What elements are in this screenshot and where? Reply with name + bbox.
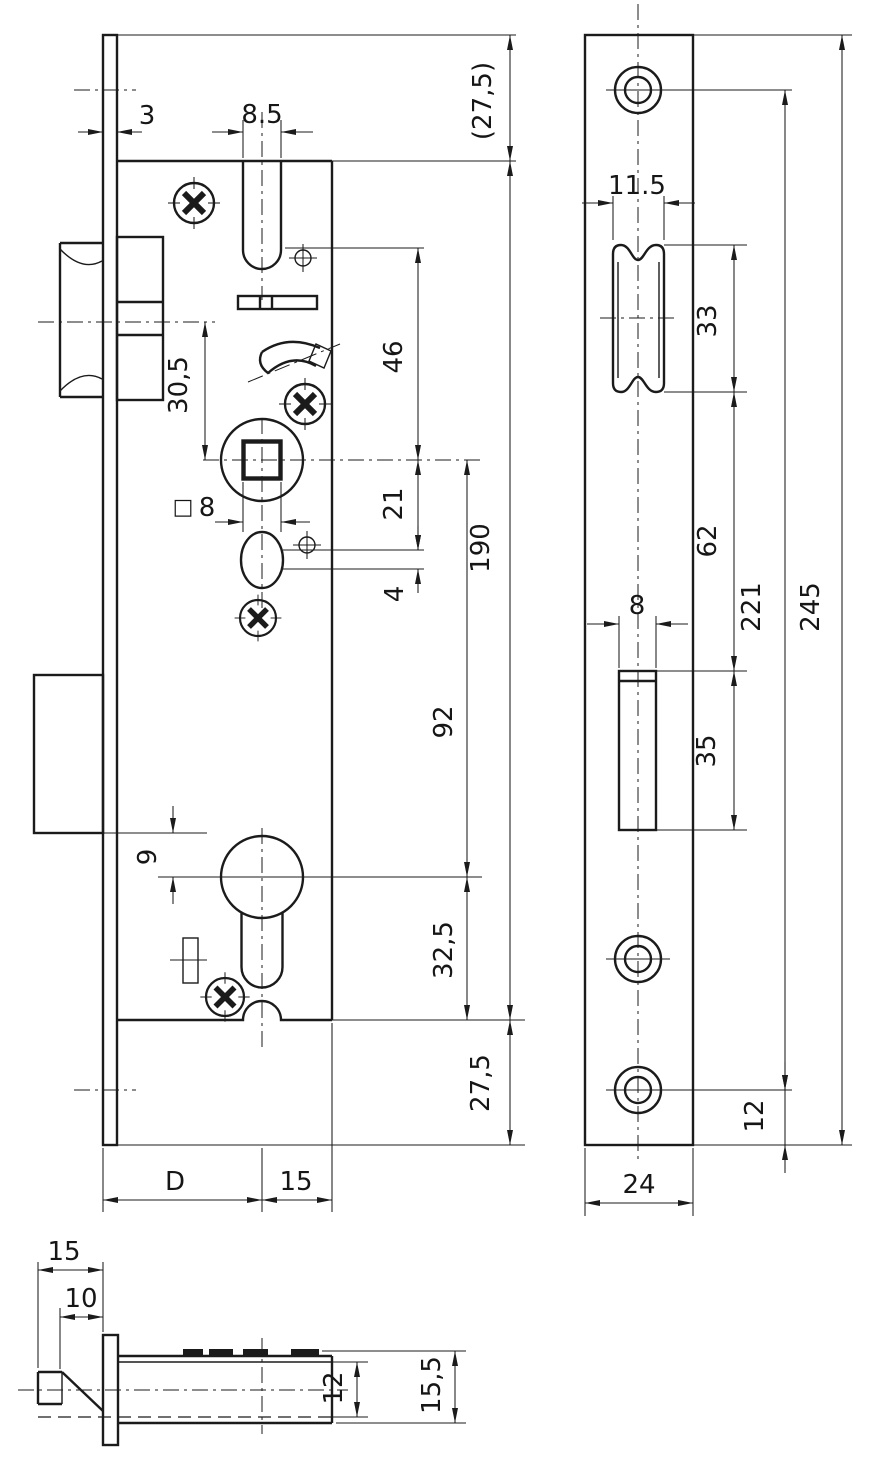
dim-follower-to-cylinder: 92 bbox=[429, 705, 459, 738]
dimension-texts-main: 3 8.5 (27,5) 46 30,5 □ 8 21 4 190 92 9 3… bbox=[133, 62, 498, 1197]
dim-plate-thickness: 3 bbox=[139, 101, 156, 131]
dim-spindle-size: 8 bbox=[199, 493, 216, 523]
dim-bottom-margin: 27,5 bbox=[466, 1054, 496, 1112]
dim-bolt-cutout-width: 8 bbox=[629, 591, 646, 621]
faceplate-edge bbox=[103, 35, 117, 1145]
phillips-screw-icon bbox=[200, 972, 249, 1021]
dimension-texts-section: 15 10 12 15,5 bbox=[47, 1237, 447, 1414]
dimension-texts-faceplate: 11.5 33 62 8 35 221 245 12 24 bbox=[608, 171, 826, 1200]
dimension-lines-main bbox=[78, 35, 510, 1200]
extension-lines-main bbox=[103, 35, 525, 1212]
dimension-lines-section bbox=[38, 1270, 455, 1423]
faceplate-outline bbox=[585, 35, 693, 1145]
dim-cylinder-to-bottom: 32,5 bbox=[429, 921, 459, 979]
dim-case-depth: 15,5 bbox=[417, 1356, 447, 1414]
dim-top-margin: (27,5) bbox=[468, 62, 498, 140]
dim-bottom-hole-offset: 12 bbox=[740, 1099, 770, 1132]
guide-pin-part bbox=[170, 938, 207, 983]
slide-bar bbox=[238, 296, 317, 309]
drawing-canvas: 3 8.5 (27,5) 46 30,5 □ 8 21 4 190 92 9 3… bbox=[0, 0, 885, 1471]
dim-bolt-to-cylinder: 9 bbox=[133, 849, 163, 866]
deadbolt-head bbox=[34, 675, 103, 833]
dim-follower-to-hole: 21 bbox=[379, 487, 409, 520]
centerlines-main bbox=[38, 90, 482, 1090]
latch-cutout bbox=[600, 245, 678, 392]
latch-bolt-body bbox=[117, 237, 163, 400]
dim-latch-to-follower: 30,5 bbox=[164, 356, 194, 414]
main-view: 3 8.5 (27,5) 46 30,5 □ 8 21 4 190 92 9 3… bbox=[34, 35, 525, 1212]
dim-plate-width: 24 bbox=[622, 1170, 655, 1200]
square-symbol: □ bbox=[173, 495, 194, 520]
case-section bbox=[38, 1349, 332, 1423]
dim-cutout-height: 33 bbox=[693, 304, 723, 337]
section-view: 15 10 12 15,5 bbox=[18, 1237, 466, 1445]
lock-technical-drawing: 3 8.5 (27,5) 46 30,5 □ 8 21 4 190 92 9 3… bbox=[0, 0, 885, 1471]
dim-plate-height: 245 bbox=[796, 582, 826, 632]
dim-cutout-gap: 62 bbox=[693, 524, 723, 557]
dim-cutout-width: 11.5 bbox=[608, 171, 666, 201]
phillips-screw-icon bbox=[279, 378, 331, 430]
latch-bolt-head bbox=[60, 243, 103, 397]
lever-part bbox=[248, 342, 340, 382]
dim-hole-offset: 4 bbox=[380, 586, 410, 603]
dim-behind-axis: 15 bbox=[279, 1167, 312, 1197]
dim-bevel-length: 10 bbox=[64, 1284, 97, 1314]
dim-bolt-height: 12 bbox=[319, 1371, 349, 1404]
dim-slot-to-follower: 46 bbox=[379, 340, 409, 373]
rivet-icon bbox=[293, 531, 321, 559]
dim-bolt-throw: 15 bbox=[47, 1237, 80, 1267]
dim-bolt-cutout-height: 35 bbox=[692, 734, 722, 767]
latch-bolt-section bbox=[38, 1372, 103, 1411]
dim-case-height: 190 bbox=[466, 523, 496, 573]
faceplate-view: 11.5 33 62 8 35 221 245 12 24 bbox=[582, 4, 852, 1216]
dim-hole-spacing: 221 bbox=[737, 582, 767, 632]
phillips-screw-icon bbox=[235, 595, 282, 642]
dim-latch-slot-width: 8.5 bbox=[241, 100, 282, 130]
dim-backset: D bbox=[165, 1167, 185, 1197]
phillips-screw-icon bbox=[168, 177, 220, 229]
